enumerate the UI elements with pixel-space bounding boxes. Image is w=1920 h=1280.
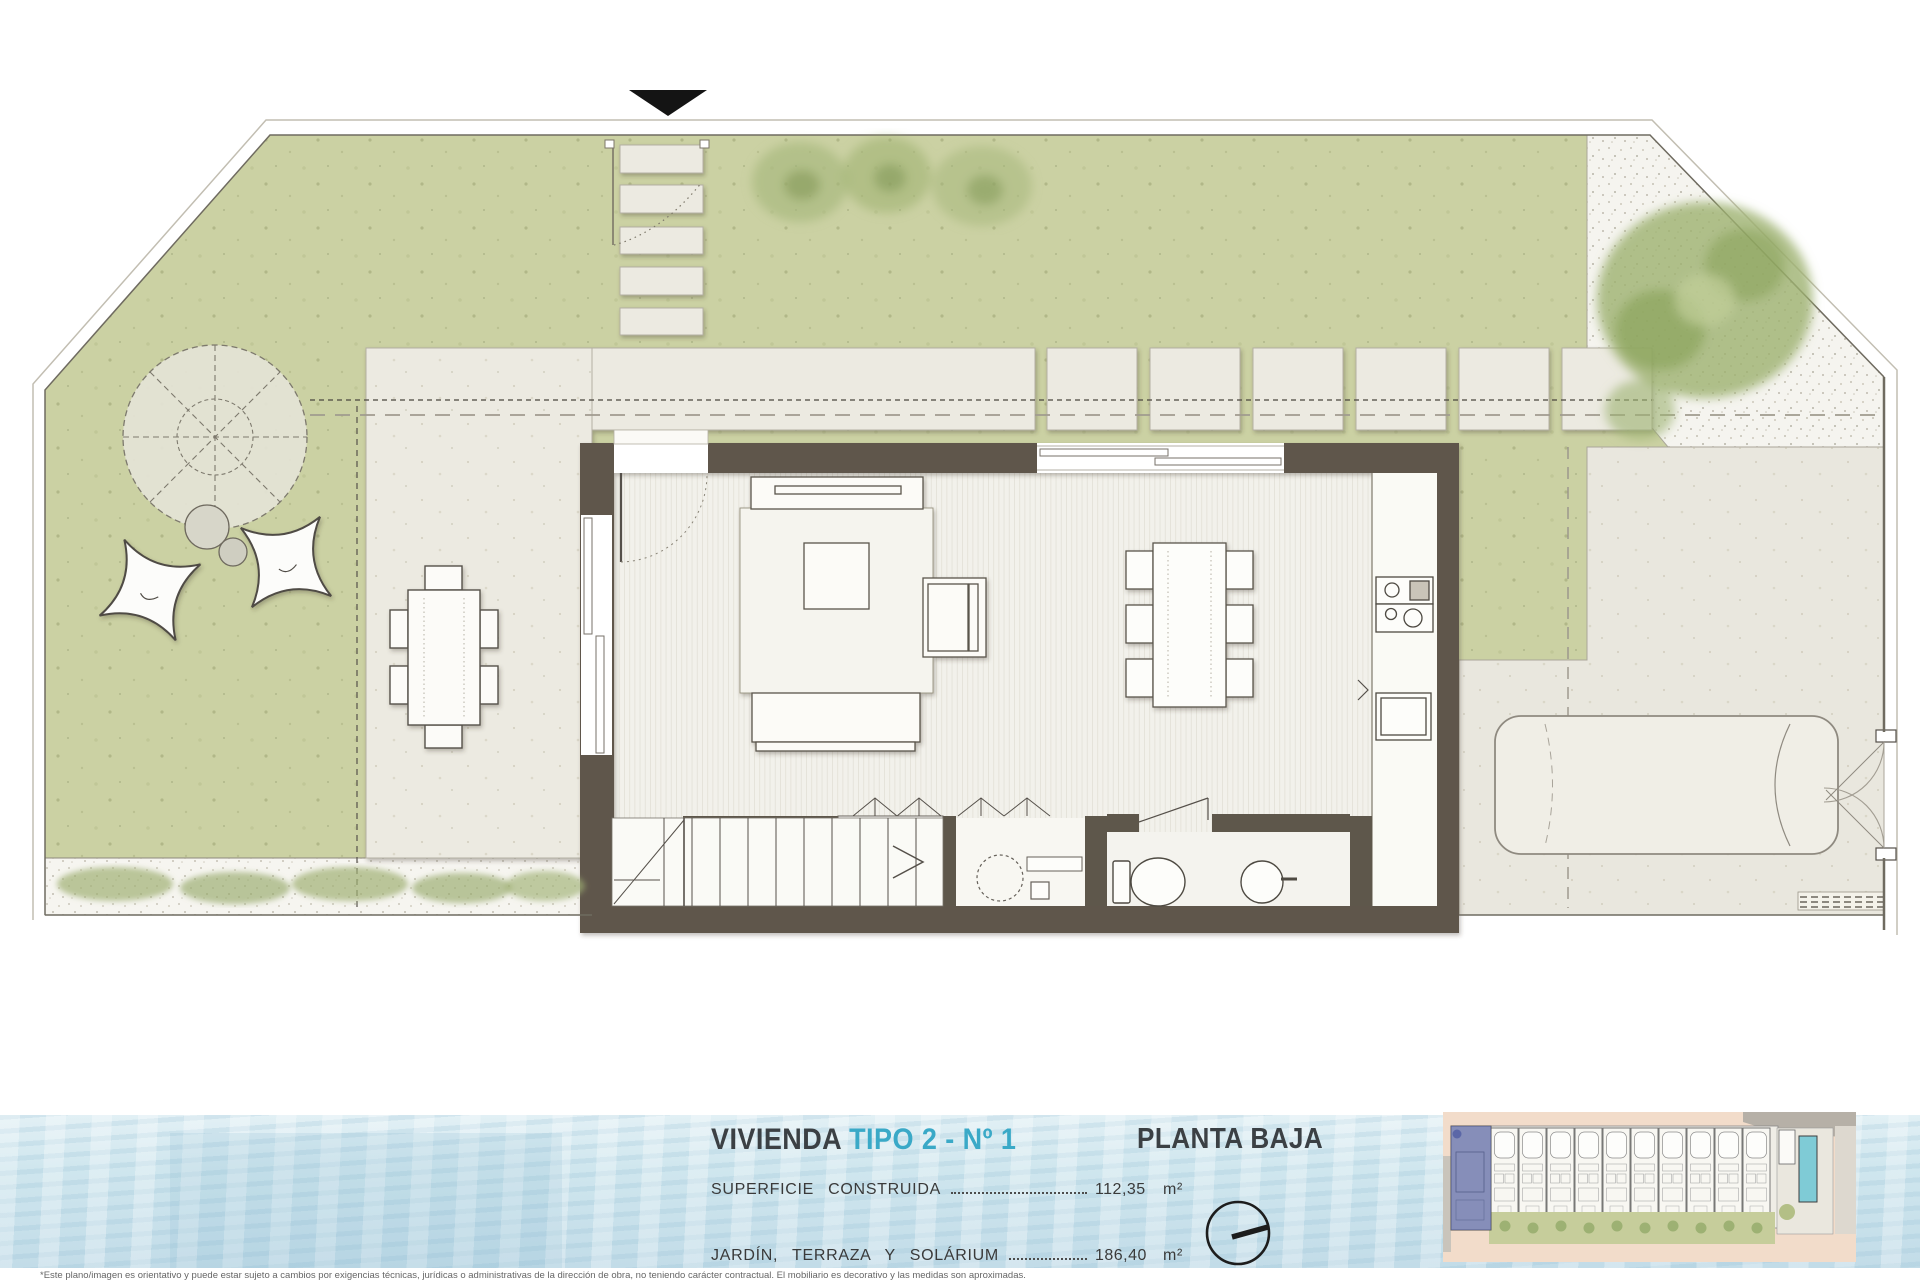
sofa-top: [751, 477, 923, 509]
compass-icon: [1202, 1197, 1274, 1269]
surface-label: JARDÍN, TERRAZA Y SOLÁRIUM: [711, 1247, 999, 1265]
staircase: [612, 818, 943, 906]
disclaimer-text: *Este plano/imagen es orientativo y pued…: [40, 1269, 1640, 1280]
surface-row-garden: JARDÍN, TERRAZA Y SOLÁRIUM 186,40 m²: [711, 1247, 1183, 1265]
dining-set: [1126, 543, 1253, 707]
surface-value: 112,35: [1095, 1181, 1157, 1199]
toilet: [1113, 858, 1185, 906]
car-outline: [1495, 716, 1838, 854]
info-bar: VIVIENDA TIPO 2 - Nº 1 PLANTA BAJA SUPER…: [0, 1115, 1920, 1268]
dining-table: [1153, 543, 1226, 707]
sofa-bottom: [752, 693, 920, 751]
unit-title-main: VIVIENDA: [711, 1123, 841, 1156]
dotted-leader: [1009, 1258, 1087, 1260]
utility-counter: [1027, 857, 1082, 871]
thumbnail-highlighted-unit: [1451, 1126, 1491, 1230]
thumbnail-pool-area: [1777, 1128, 1833, 1234]
coffee-table: [804, 543, 869, 609]
outdoor-table: [408, 590, 480, 725]
house: [580, 430, 1459, 933]
entry-arrow-icon: [629, 90, 707, 116]
surface-unit: m²: [1163, 1181, 1183, 1199]
surface-value: 186,40: [1095, 1247, 1157, 1265]
utility-cabinet: [1031, 882, 1049, 899]
plan-title: PLANTA BAJA: [1137, 1123, 1323, 1156]
window-band: [1037, 443, 1284, 473]
armchair: [923, 578, 986, 657]
thumbnail-garden-strip: [1489, 1212, 1775, 1244]
floor-plan-sheet: VIVIENDA TIPO 2 - Nº 1 PLANTA BAJA SUPER…: [0, 0, 1920, 1280]
unit-title: VIVIENDA TIPO 2 - Nº 1: [711, 1123, 1016, 1157]
water-texture-patch: [170, 1133, 562, 1268]
site-plan-thumbnail: [1443, 1112, 1856, 1262]
cooktop: [1376, 577, 1433, 632]
unit-title-accent: TIPO 2 - Nº 1: [849, 1123, 1016, 1156]
floor-plan-drawing: [0, 0, 1920, 1115]
surface-unit: m²: [1163, 1247, 1183, 1265]
dotted-leader: [951, 1192, 1087, 1194]
fridge: [1376, 693, 1431, 740]
thumbnail-right-edge: [1835, 1126, 1856, 1234]
drain-grate: [1798, 892, 1884, 910]
side-window: [581, 515, 612, 755]
utility-room: [956, 818, 1085, 906]
side-table-small: [219, 538, 247, 566]
surface-row-built: SUPERFICIE CONSTRUIDA 112,35 m²: [711, 1181, 1183, 1199]
surface-label: SUPERFICIE CONSTRUIDA: [711, 1181, 941, 1199]
